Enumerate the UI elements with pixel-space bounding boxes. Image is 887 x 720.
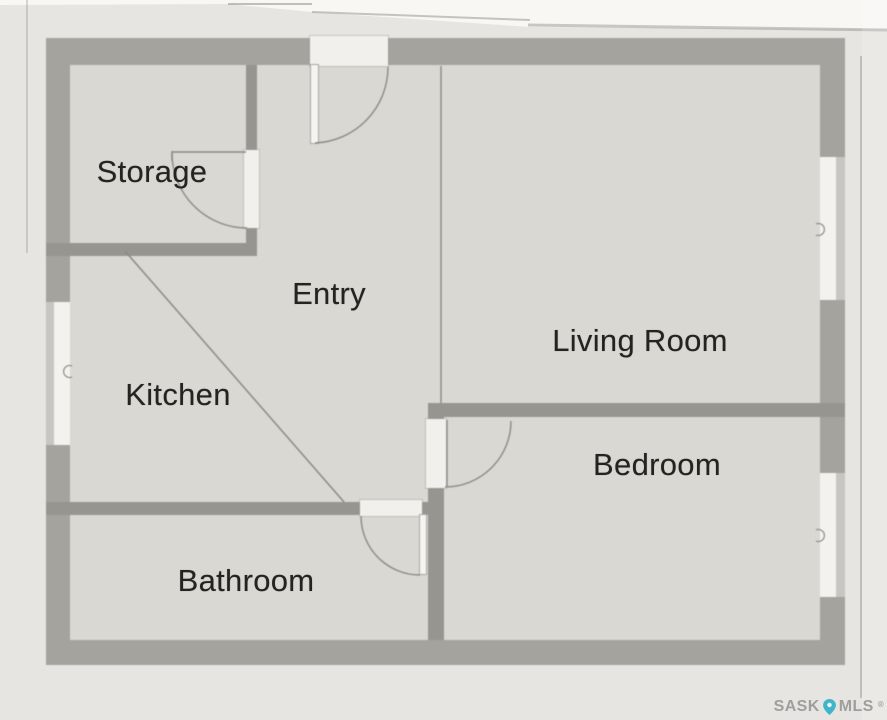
- door-leaf-bathroom: [419, 514, 427, 575]
- window-livingroom-outer: [836, 157, 845, 300]
- floor-plan-drawing: [0, 0, 887, 720]
- room-label-bedroom: Bedroom: [593, 447, 721, 483]
- window-bedroom: [820, 473, 836, 597]
- wall-top: [46, 38, 845, 65]
- room-label-livingroom: Living Room: [552, 323, 728, 359]
- room-label-entry: Entry: [292, 276, 366, 312]
- window-bedroom-outer: [836, 473, 845, 597]
- map-pin-icon: [823, 699, 836, 715]
- room-label-storage: Storage: [97, 154, 208, 190]
- room-label-kitchen: Kitchen: [125, 377, 231, 413]
- wall-livingroom-bedroom: [428, 403, 845, 417]
- door-leaf-entry: [310, 64, 319, 144]
- door-opening-entry: [310, 36, 388, 66]
- watermark-registered-symbol: ®: [878, 700, 884, 709]
- wall-storage-bottom: [46, 243, 257, 256]
- window-kitchen-outer: [46, 302, 54, 445]
- wall-bottom: [46, 640, 845, 665]
- watermark: SASK MLS ®: [774, 698, 884, 716]
- floor-plan-page: Storage Entry Kitchen Living Room Bedroo…: [0, 0, 887, 720]
- door-opening-storage: [244, 150, 259, 228]
- room-label-bathroom: Bathroom: [178, 563, 315, 599]
- window-livingroom: [820, 157, 836, 300]
- watermark-sask-text: SASK: [774, 698, 820, 716]
- door-opening-bedroom: [426, 419, 446, 488]
- window-kitchen: [54, 302, 70, 445]
- watermark-mls-text: MLS: [839, 698, 874, 716]
- door-opening-bathroom: [360, 500, 422, 516]
